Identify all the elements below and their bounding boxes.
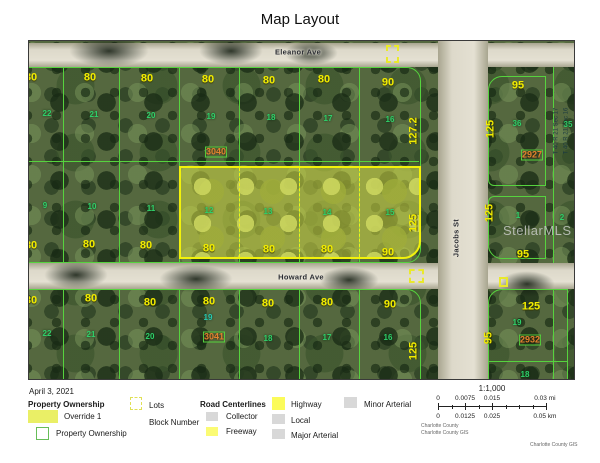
selected-parcel-line <box>299 168 300 257</box>
lot-number: 21 <box>87 331 96 339</box>
parcel-line <box>359 289 360 380</box>
lot-number: 17 <box>324 115 333 123</box>
scale-km-tick: 0.0125 <box>455 413 475 420</box>
scale-km-tick: 0.05 km <box>533 413 556 420</box>
lot-number: 18 <box>264 335 273 343</box>
lot-number: 13 <box>264 208 273 216</box>
scale-mi-tick: 0.015 <box>484 395 500 402</box>
lot-number: 22 <box>43 330 52 338</box>
block-number: 2932 <box>519 335 541 346</box>
highway-swatch <box>272 397 285 410</box>
lot-width-label: 90 <box>382 78 394 89</box>
depth-label: 125 <box>409 342 420 360</box>
override-label: Override 1 <box>64 412 101 421</box>
section-township-label: T 40 R 21 Sec 17 T 40 R 21 Sec 16 <box>552 108 571 155</box>
depth-label: 125 <box>409 214 420 232</box>
lots-marker-icon <box>386 45 399 63</box>
watermark: StellarMLS <box>503 223 572 238</box>
section-line <box>553 289 554 380</box>
depth-label: 95 <box>484 332 495 344</box>
minor-arterial-label: Minor Arterial <box>364 400 411 409</box>
street-label: Jacobs St <box>452 219 460 257</box>
page: Map Layout <box>0 0 600 463</box>
lot-number: 18 <box>521 371 530 379</box>
lots-label: Lots <box>149 401 164 410</box>
street-label: Eleanor Ave <box>275 48 321 56</box>
lot-width-label: 80 <box>203 244 215 255</box>
lot-number: 11 <box>147 205 155 213</box>
lot-width-label: 80 <box>84 73 96 84</box>
property-ownership-label: Property Ownership <box>56 429 127 438</box>
lot-width-label: 80 <box>144 298 156 309</box>
lot-width-label: 80 <box>202 75 214 86</box>
lot-width-label: 95 <box>512 81 524 92</box>
lot-width-label: 80 <box>85 294 97 305</box>
scale-tick <box>546 403 547 410</box>
freeway-label: Freeway <box>226 427 257 436</box>
legend-property-ownership-title: Property Ownership <box>28 400 104 409</box>
parcel-line <box>63 67 64 263</box>
map-date: April 3, 2021 <box>29 387 74 396</box>
parcel-line <box>488 361 568 362</box>
scale-tick <box>506 405 507 409</box>
lots-swatch <box>130 397 142 410</box>
lot-number: 17 <box>323 334 332 342</box>
lot-number: 19 <box>204 314 213 322</box>
block-number-label: Block Number <box>149 418 199 427</box>
scale-mi-tick: 0.0075 <box>455 395 475 402</box>
parcel-line <box>239 289 240 380</box>
lot-width-label: 80 <box>140 241 152 252</box>
lot-width-label: 80 <box>203 297 215 308</box>
major-arterial-label: Major Arterial <box>291 431 338 440</box>
lot-number: 2 <box>560 214 564 222</box>
lot-number: 14 <box>323 209 332 217</box>
scale-tick <box>492 403 493 410</box>
tree-shadow <box>199 40 263 65</box>
block-number: 3040 <box>205 147 227 158</box>
parcel-line <box>63 289 64 380</box>
lot-number: 19 <box>207 113 216 121</box>
lot-width-label: 90 <box>382 248 394 259</box>
lot-number: 1 <box>516 212 520 220</box>
scale-tick <box>452 405 453 409</box>
scale-tick <box>519 405 520 409</box>
lots-marker-icon <box>409 269 424 283</box>
lot-number: 16 <box>386 116 395 124</box>
lot-number: 10 <box>88 203 97 211</box>
parcel-line <box>119 289 120 380</box>
collector-swatch <box>206 412 218 421</box>
lot-number: 22 <box>43 110 52 118</box>
lot-width-label: 80 <box>263 245 275 256</box>
depth-label: 127.2 <box>409 117 420 145</box>
local-label: Local <box>291 416 310 425</box>
parcel-block-ne <box>488 76 546 186</box>
lot-width-label: 80 <box>263 76 275 87</box>
block-number: 3041 <box>203 332 225 343</box>
parcel-line <box>28 161 419 162</box>
depth-label: 125 <box>486 120 497 138</box>
parcel-line <box>299 289 300 380</box>
page-title: Map Layout <box>0 11 600 28</box>
selected-parcel-line <box>239 168 240 257</box>
lot-number: 16 <box>384 334 393 342</box>
lot-width-label: 80 <box>28 296 37 307</box>
scale-tick <box>438 403 439 410</box>
lot-number: 9 <box>43 202 47 210</box>
scale-mi-tick: 0 <box>436 395 440 402</box>
scale-km-tick: 0 <box>436 413 440 420</box>
selected-parcel-line <box>359 168 360 257</box>
lot-width-label: 80 <box>321 298 333 309</box>
lot-width-label: 80 <box>141 74 153 85</box>
parcel-line <box>119 67 120 263</box>
local-swatch <box>272 414 285 424</box>
lot-number: 21 <box>90 111 99 119</box>
lot-number: 18 <box>267 114 276 122</box>
street-label: Howard Ave <box>278 273 324 281</box>
map-source: Charlotte County Charlotte County GIS <box>421 423 469 436</box>
override-swatch <box>28 410 58 423</box>
map-canvas: T 40 R 21 Sec 17 T 40 R 21 Sec 16 808080… <box>28 40 575 380</box>
lot-width-label: 80 <box>28 241 37 252</box>
major-arterial-swatch <box>272 429 285 439</box>
scale-line <box>438 406 546 407</box>
highway-label: Highway <box>291 400 322 409</box>
scale-km-tick: 0.025 <box>484 413 500 420</box>
lot-width-label: 80 <box>262 299 274 310</box>
lots-marker-icon <box>499 277 508 287</box>
collector-label: Collector <box>226 412 258 421</box>
scale-tick <box>533 405 534 409</box>
legend-road-centerlines-title: Road Centerlines <box>200 400 266 409</box>
lot-width-label: 80 <box>321 245 333 256</box>
depth-label: 125 <box>485 204 496 222</box>
lot-number: 35 <box>564 121 573 129</box>
scale-mi-tick: 0.03 mi <box>534 395 555 402</box>
scale-tick <box>465 403 466 410</box>
freeway-swatch <box>206 427 218 436</box>
lot-number: 12 <box>205 207 214 215</box>
lot-width-label: 95 <box>517 250 529 261</box>
road-jacobs-st <box>438 41 488 380</box>
lot-width-label: 125 <box>522 302 540 313</box>
parcel-line <box>179 289 180 380</box>
credit: Charlotte County GIS <box>530 442 578 449</box>
tree-shadow <box>69 40 149 67</box>
lot-number: 36 <box>513 120 522 128</box>
minor-arterial-swatch <box>344 397 357 408</box>
scale-tick <box>479 405 480 409</box>
property-ownership-swatch <box>36 427 49 440</box>
lot-width-label: 90 <box>384 300 396 311</box>
block-number: 2927 <box>521 150 543 161</box>
lot-width-label: 80 <box>83 240 95 251</box>
lot-number: 20 <box>147 112 156 120</box>
lot-width-label: 80 <box>318 75 330 86</box>
tree-shadow <box>44 261 108 289</box>
lot-number: 19 <box>513 319 522 327</box>
lot-number: 15 <box>386 209 395 217</box>
lot-number: 20 <box>146 333 155 341</box>
lot-width-label: 80 <box>28 73 37 84</box>
scale-ratio: 1:1,000 <box>438 384 546 393</box>
